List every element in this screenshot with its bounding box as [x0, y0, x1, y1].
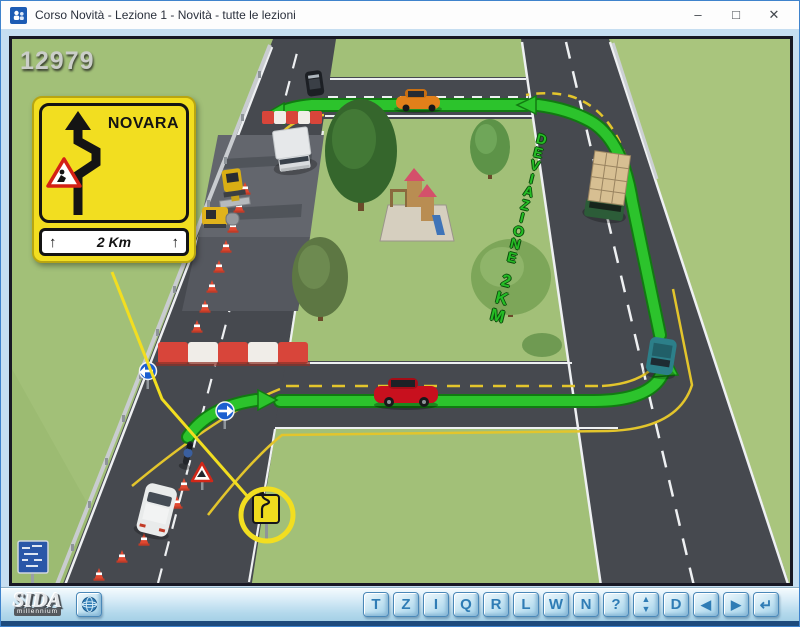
sida-logo: SIDA millennium — [13, 593, 62, 616]
distance-panel: ↑ 2 Km ↑ — [39, 228, 189, 256]
toolbar-button-n[interactable]: N — [573, 592, 599, 617]
toolbar-button-t[interactable]: T — [363, 592, 389, 617]
globe-icon — [81, 596, 98, 613]
spinner-button[interactable]: ▲ ▼ — [633, 592, 659, 617]
destination-label: NOVARA — [108, 115, 179, 133]
up-arrow-icon: ↑ — [171, 234, 179, 251]
window-controls: – □ ✕ — [679, 1, 799, 29]
barrier-row-middle — [156, 342, 310, 366]
bush — [522, 333, 562, 357]
close-button[interactable]: ✕ — [755, 1, 793, 29]
previous-button[interactable]: ◀ — [693, 592, 719, 617]
minimize-button[interactable]: – — [679, 1, 717, 29]
toolbar-button-help[interactable]: ? — [603, 592, 629, 617]
sida-logo-text: SIDA — [13, 593, 62, 608]
globe-button[interactable] — [76, 592, 102, 617]
roadworks-warning-icon — [45, 156, 83, 190]
black-car — [304, 70, 324, 97]
sida-logo-subtext: millennium — [14, 608, 61, 616]
app-people-icon — [10, 7, 27, 24]
spinner-down-icon[interactable]: ▼ — [642, 605, 651, 614]
up-arrow-icon: ↑ — [49, 234, 57, 251]
bottom-toolbar: SIDA millennium T Z I Q R L W N ? ▲ ▼ D … — [1, 587, 799, 621]
toolbar-button-l[interactable]: L — [513, 592, 539, 617]
toolbar-button-q[interactable]: Q — [453, 592, 479, 617]
app-window: Corso Novità - Lezione 1 - Novità - tutt… — [0, 0, 800, 627]
toolbar-button-d[interactable]: D — [663, 592, 689, 617]
title-bar: Corso Novità - Lezione 1 - Novità - tutt… — [1, 1, 799, 29]
detour-sign-callout: NOVARA ↑ 2 Km ↑ — [32, 96, 196, 263]
lesson-illustration: 12979 NOVARA ↑ 2 Km — [9, 36, 793, 586]
toolbar-button-w[interactable]: W — [543, 592, 569, 617]
window-title: Corso Novità - Lezione 1 - Novità - tutt… — [35, 8, 296, 22]
spinner-up-icon[interactable]: ▲ — [642, 595, 651, 604]
maximize-button[interactable]: □ — [717, 1, 755, 29]
next-button[interactable]: ▶ — [723, 592, 749, 617]
toolbar-button-i[interactable]: I — [423, 592, 449, 617]
window-bottom-strip — [1, 621, 799, 626]
enter-button[interactable]: ↵ — [753, 592, 779, 617]
toolbar-button-r[interactable]: R — [483, 592, 509, 617]
lesson-content-area: 12979 NOVARA ↑ 2 Km — [1, 29, 799, 587]
image-number: 12979 — [20, 47, 95, 76]
toolbar-button-z[interactable]: Z — [393, 592, 419, 617]
detour-sign-face: NOVARA — [39, 103, 189, 223]
barrier-row-top — [262, 111, 322, 124]
distance-label: 2 Km — [97, 234, 131, 250]
